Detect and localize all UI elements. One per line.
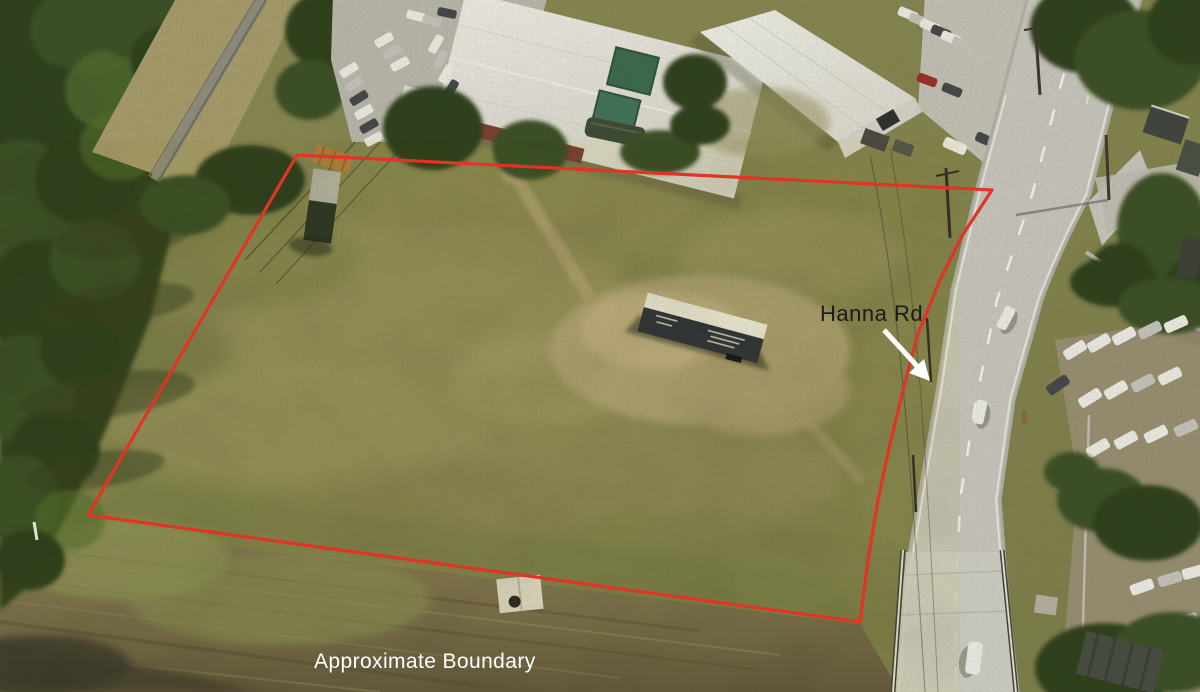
aerial-photo: Hanna Rd Approximate Boundary	[0, 0, 1200, 692]
boundary-label: Approximate Boundary	[314, 650, 536, 673]
texture-grain	[0, 0, 1200, 692]
aerial-scene: Hanna Rd Approximate Boundary	[0, 0, 1200, 692]
road-label: Hanna Rd	[820, 301, 923, 326]
